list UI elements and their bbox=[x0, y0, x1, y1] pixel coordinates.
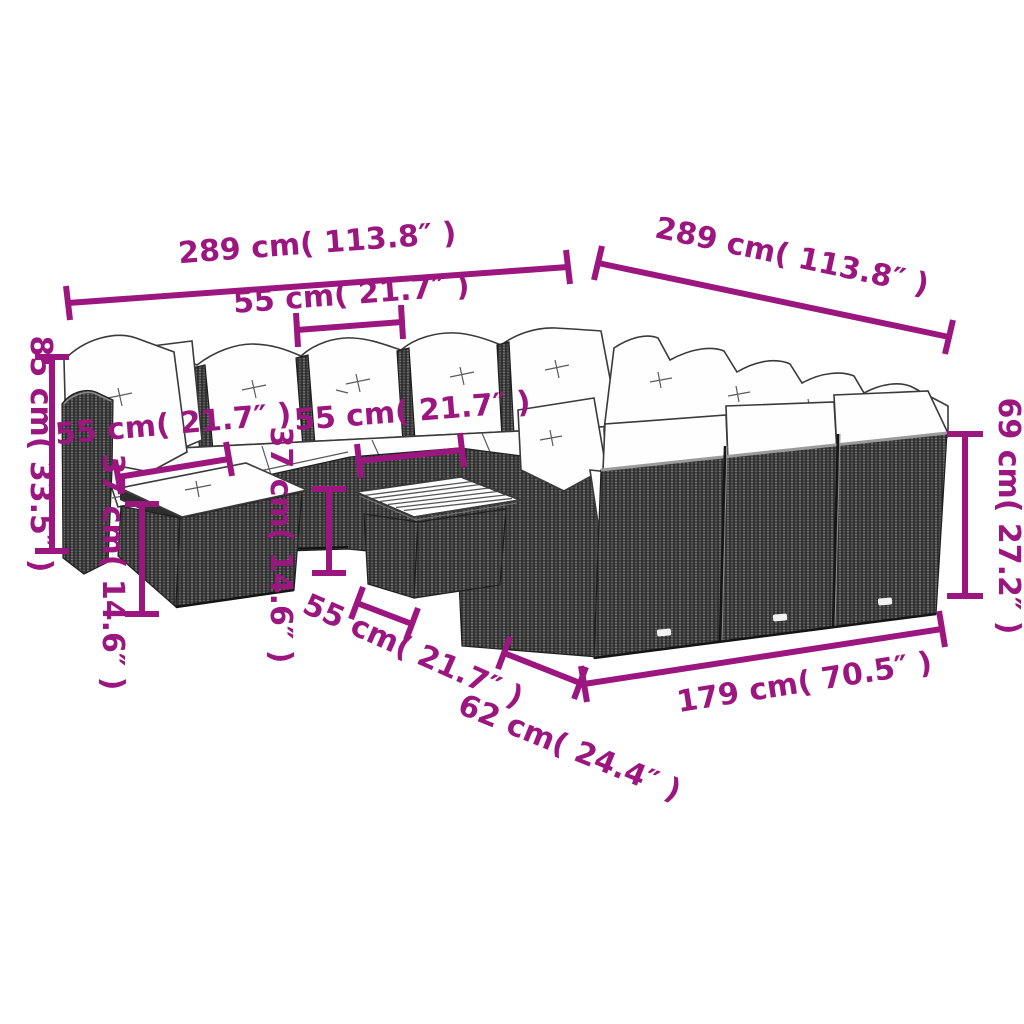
diagram-canvas: 289 cm( 113.8″ ) 289 cm( 113.8″ ) 55 cm(… bbox=[0, 0, 1024, 1024]
dim-table-depth-label: 62 cm( 24.4″ ) bbox=[453, 688, 686, 809]
product-dimension-diagram: 289 cm( 113.8″ ) 289 cm( 113.8″ ) 55 cm(… bbox=[0, 0, 1024, 1024]
dim-back-height-right-label: 69 cm( 27.2″ ) bbox=[991, 398, 1024, 635]
dim-back-height-left-label: 85 cm( 33.5″ ) bbox=[23, 336, 58, 573]
sofa-illustration bbox=[62, 328, 948, 658]
dim-seat-height-label: 37 cm( 14.6″ ) bbox=[95, 454, 130, 691]
dim-front-length-label: 179 cm( 70.5″ ) bbox=[674, 645, 934, 720]
dim-back-height-right: 69 cm( 27.2″ ) bbox=[947, 398, 1024, 635]
dim-left-total-length-label: 289 cm( 113.8″ ) bbox=[177, 216, 458, 271]
dim-right-total-length: 289 cm( 113.8″ ) bbox=[594, 211, 953, 354]
dim-right-total-length-label: 289 cm( 113.8″ ) bbox=[652, 211, 932, 303]
dim-table-height-label: 37 cm( 14.6″ ) bbox=[263, 427, 298, 664]
coffee-table bbox=[356, 477, 520, 598]
right-wing-back-panel bbox=[594, 433, 947, 658]
dim-seat-width-top-label: 55 cm( 21.7″ ) bbox=[232, 268, 471, 321]
dim-table-depth: 62 cm( 24.4″ ) bbox=[453, 637, 686, 809]
